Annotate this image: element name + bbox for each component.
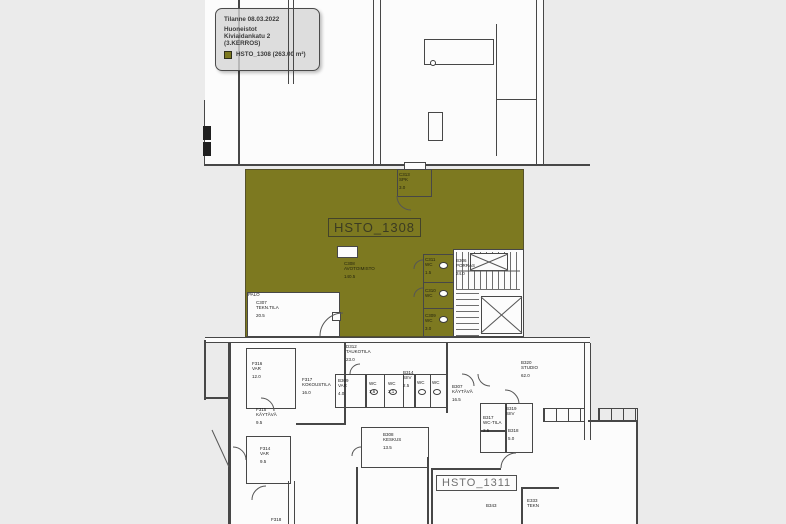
legend-title: Huoneistot — [224, 26, 319, 33]
fixture — [433, 389, 441, 395]
wall-segment — [431, 468, 433, 524]
stair-treads — [456, 292, 479, 336]
wall-segment — [356, 467, 358, 524]
wall-segment — [423, 308, 454, 309]
room-label-b306: B306PORRAS24.0 — [456, 258, 475, 276]
wall-segment — [536, 0, 544, 166]
legend-status-line: Tilanne 08.03.2022 — [224, 16, 319, 23]
room-label-b309: B309VAR4.0 — [338, 378, 349, 396]
wall-segment — [423, 282, 454, 283]
room-outline — [481, 296, 522, 334]
wall-segment — [228, 343, 231, 524]
wall-segment — [296, 423, 346, 425]
room-label-f316: F316VAR12.0 — [252, 361, 262, 379]
room-label-b320: B320STUDIO62.0 — [521, 360, 538, 378]
room-label-b318: B3185.0 — [508, 428, 519, 441]
fixture — [439, 262, 448, 269]
room-label-palo: PALO — [248, 292, 260, 297]
wall-segment — [431, 468, 501, 470]
wall-segment — [588, 420, 638, 422]
wall-segment — [636, 420, 638, 524]
room-label-c310: C310WC — [425, 288, 436, 298]
wall-segment — [293, 0, 294, 84]
floorplan-canvas: HSTO_1308 HSTO_1311 C313SPK3.0C308AVOTOI… — [0, 0, 786, 524]
window-wall — [543, 408, 585, 422]
room-label-b314: B314SIIV2.5 — [403, 370, 414, 388]
wall-segment — [205, 397, 229, 399]
room-label-f318: F318 — [271, 517, 281, 522]
wall-segment — [205, 164, 590, 166]
radiator — [203, 126, 211, 140]
legend-panel: Tilanne 08.03.2022 Huoneistot Kiviaidank… — [215, 8, 320, 71]
wall-segment — [384, 374, 385, 408]
room-label-f314: F314VAR9.5 — [260, 446, 270, 464]
fixture — [418, 389, 426, 395]
room-label-b317: B317WC-TILA2.5 — [483, 415, 502, 433]
wall-segment — [288, 481, 295, 524]
room-outline — [332, 312, 341, 321]
wall-segment — [497, 99, 536, 100]
room-label-e333: E333TEKN — [527, 498, 539, 508]
room-outline — [337, 246, 358, 258]
legend-swatch-icon — [224, 51, 232, 59]
wall-segment — [496, 24, 497, 156]
wall-segment — [204, 340, 206, 400]
room-label-wc: WC1.6 — [369, 381, 377, 394]
room-label-b307: B307KÄYTÄVÄ16.5 — [452, 384, 473, 402]
apartment-label-hsto-1308[interactable]: HSTO_1308 — [328, 218, 421, 237]
room-label-c307: C307TEKN.TILA20.5 — [256, 300, 279, 318]
fixture — [439, 316, 448, 323]
fixture — [439, 290, 448, 297]
wall-segment — [288, 0, 289, 84]
radiator — [203, 142, 211, 156]
legend-address: Kiviaidankatu 2 — [224, 33, 319, 40]
legend-item: HSTO_1308 (263.00 m²) — [224, 51, 319, 59]
wall-segment — [521, 487, 559, 489]
wall-segment — [430, 374, 431, 408]
wall-segment — [521, 487, 523, 524]
room-label-b319: B319SIIV — [506, 406, 517, 416]
room-label-d312: D312TAUKOTILA23.0 — [346, 344, 371, 362]
apartment-label-hsto-1311[interactable]: HSTO_1311 — [436, 475, 517, 491]
wall-segment — [584, 343, 591, 440]
room-outline — [404, 162, 426, 170]
wall-segment — [373, 0, 381, 166]
room-label-b343: B343 — [486, 503, 497, 508]
legend-floor: (3.KERROS) — [224, 40, 319, 47]
room-label-c308: C308AVOTOIMISTO140.5 — [344, 261, 375, 279]
room-label-b308: B308KESKUS13.5 — [383, 432, 401, 450]
room-label-c309: C309WC3.0 — [425, 313, 436, 331]
fixture — [430, 60, 436, 66]
room-label-f315: F315KÄYTÄVÄ9.5 — [256, 407, 277, 425]
room-label-wc: WC — [417, 380, 425, 385]
room-label-f317: F317KOKOUSTILA16.0 — [302, 377, 331, 395]
room-label-c311: C311WC1.5 — [425, 257, 435, 275]
floor-area — [588, 421, 638, 524]
room-outline — [428, 112, 443, 141]
legend-item-label: HSTO_1308 (263.00 m²) — [236, 51, 319, 58]
room-label-wc: WC — [432, 380, 440, 385]
wall-segment — [205, 337, 590, 343]
room-label-wc: WC2.1 — [388, 381, 396, 394]
room-label-c313: C313SPK3.0 — [399, 172, 410, 190]
room-outline — [470, 253, 508, 271]
